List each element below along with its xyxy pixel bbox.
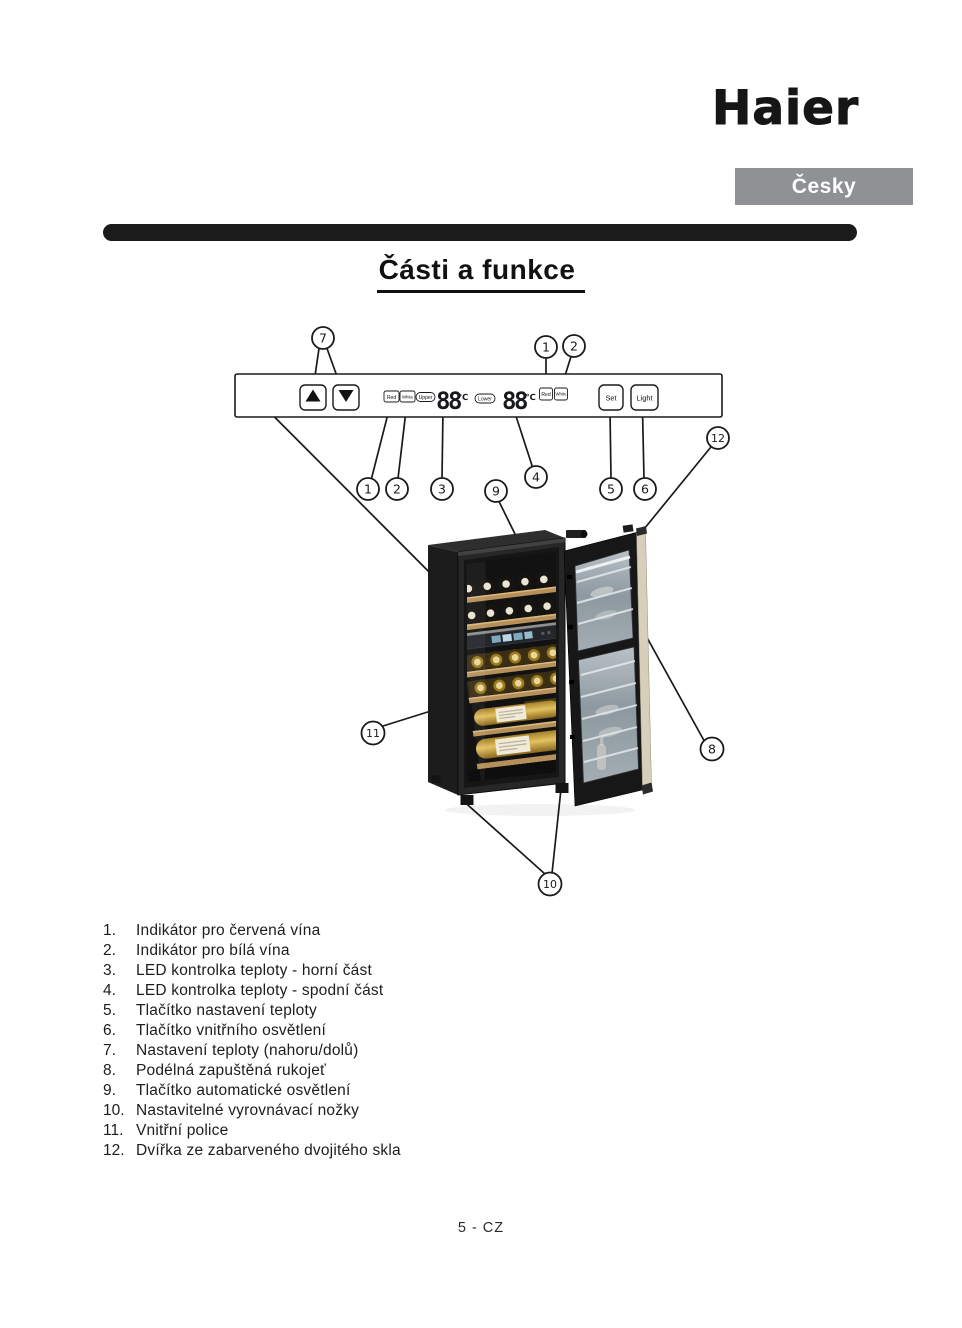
upper-white-indicator: White <box>400 391 415 402</box>
callout-4-number: 4 <box>532 469 540 484</box>
callout-7-number: 7 <box>319 330 327 345</box>
callout-3: 3 <box>431 478 453 500</box>
light-button: Light <box>631 385 658 410</box>
callout-11: 11 <box>362 722 385 745</box>
part-number: 11. <box>103 1121 136 1141</box>
temp-up-button <box>300 385 326 410</box>
leveling-foot-right <box>556 783 569 793</box>
part-label: Tlačítko vnitřního osvětlení <box>136 1021 583 1041</box>
page-footer: 5 - CZ <box>0 1220 962 1236</box>
glass-door <box>564 524 653 806</box>
part-label: Nastavitelné vyrovnávací nožky <box>136 1101 583 1121</box>
part-label: Dvířka ze zabarveného dvojitého skla <box>136 1141 583 1161</box>
callout-3-number: 3 <box>438 481 446 496</box>
svg-text:88: 88 <box>502 387 527 415</box>
callout-5: 5 <box>600 478 622 500</box>
callout-2-number: 2 <box>393 481 401 496</box>
callout-9-number: 9 <box>492 483 500 498</box>
part-number: 2. <box>103 941 136 961</box>
callout-1-number: 1 <box>364 481 372 496</box>
callout-10: 10 <box>539 873 562 896</box>
parts-list-item-11: 11.Vnitřní police <box>103 1121 583 1141</box>
brand-logo: Haier <box>712 84 862 134</box>
callout-12: 12 <box>707 427 729 449</box>
part-number: 12. <box>103 1141 136 1161</box>
header-divider-bar <box>103 224 857 241</box>
part-label: Nastavení teploty (nahoru/dolů) <box>136 1041 583 1061</box>
upper-red-indicator: Red <box>384 391 399 402</box>
temp-down-button <box>333 385 359 410</box>
part-number: 9. <box>103 1081 136 1101</box>
callout-1-top: 1 <box>535 336 557 358</box>
lower-white-indicator: White <box>555 388 568 400</box>
part-number: 1. <box>103 921 136 941</box>
part-number: 3. <box>103 961 136 981</box>
parts-list-item-5: 5.Tlačítko nastavení teploty <box>103 1001 583 1021</box>
callout-9: 9 <box>485 480 507 502</box>
lower-zone-label: Lower <box>475 394 495 403</box>
callout-2: 2 <box>386 478 408 500</box>
part-label: Tlačítko nastavení teploty <box>136 1001 583 1021</box>
leveling-foot-left <box>461 795 474 805</box>
callout-11-number: 11 <box>366 727 380 740</box>
part-label: LED kontrolka teploty - spodní část <box>136 981 583 1001</box>
callout-8: 8 <box>701 738 724 761</box>
part-number: 8. <box>103 1061 136 1081</box>
callout-1: 1 <box>357 478 379 500</box>
parts-list-item-12: 12.Dvířka ze zabarveného dvojitého skla <box>103 1141 583 1161</box>
part-label: Vnitřní police <box>136 1121 583 1141</box>
part-label: Indikátor pro červená vína <box>136 921 583 941</box>
svg-text:Red: Red <box>541 392 551 398</box>
upper-zone-label: Upper <box>416 393 435 402</box>
callout-2-number: 2 <box>570 338 578 353</box>
parts-list-item-3: 3.LED kontrolka teploty - horní část <box>103 961 583 981</box>
callout-5-number: 5 <box>607 481 615 496</box>
part-label: Tlačítko automatické osvětlení <box>136 1081 583 1101</box>
callout-7: 7 <box>312 327 334 349</box>
parts-list-item-4: 4.LED kontrolka teploty - spodní část <box>103 981 583 1001</box>
svg-text:Lower: Lower <box>478 397 492 403</box>
part-label: Indikátor pro bílá vína <box>136 941 583 961</box>
callout-2-top: 2 <box>563 335 585 357</box>
cabinet-left-side <box>428 545 458 795</box>
part-label: Podélná zapuštěná rukojeť <box>136 1061 583 1081</box>
page-title: Části a funkce <box>0 250 962 293</box>
set-button: Set <box>599 385 623 410</box>
part-number: 10. <box>103 1101 136 1121</box>
parts-list-item-1: 1.Indikátor pro červená vína <box>103 921 583 941</box>
part-number: 6. <box>103 1021 136 1041</box>
parts-list-item-10: 10.Nastavitelné vyrovnávací nožky <box>103 1101 583 1121</box>
svg-text:Light: Light <box>636 394 652 403</box>
svg-text:Set: Set <box>605 394 616 403</box>
callout-4: 4 <box>525 466 547 488</box>
part-number: 7. <box>103 1041 136 1061</box>
svg-text:℃: ℃ <box>526 393 536 403</box>
callout-12-number: 12 <box>711 432 725 445</box>
wine-cooler-illustration <box>428 524 653 816</box>
part-number: 4. <box>103 981 136 1001</box>
callout-10-number: 10 <box>543 878 557 891</box>
parts-list-item-2: 2.Indikátor pro bílá vína <box>103 941 583 961</box>
part-label: LED kontrolka teploty - horní část <box>136 961 583 981</box>
svg-text:Upper: Upper <box>419 395 433 401</box>
svg-text:White: White <box>402 395 414 400</box>
callout-1-number: 1 <box>542 339 550 354</box>
control-panel-diagram: Red White Upper 88 ℃ Lower 88 ℃ <box>235 374 722 417</box>
parts-list: 1.Indikátor pro červená vína 2.Indikátor… <box>103 921 583 1161</box>
svg-text:White: White <box>556 392 568 397</box>
part-number: 5. <box>103 1001 136 1021</box>
svg-text:Red: Red <box>387 395 397 401</box>
parts-list-item-9: 9.Tlačítko automatické osvětlení <box>103 1081 583 1101</box>
callout-6: 6 <box>634 478 656 500</box>
parts-diagram: Red White Upper 88 ℃ Lower 88 ℃ <box>0 320 962 920</box>
parts-list-item-8: 8.Podélná zapuštěná rukojeť <box>103 1061 583 1081</box>
svg-text:℃: ℃ <box>458 393 468 403</box>
language-tab: Česky <box>735 168 913 205</box>
manual-page: Haier Česky Části a funkce <box>0 0 962 1328</box>
parts-list-item-7: 7.Nastavení teploty (nahoru/dolů) <box>103 1041 583 1061</box>
parts-list-item-6: 6.Tlačítko vnitřního osvětlení <box>103 1021 583 1041</box>
lower-red-indicator: Red <box>540 388 553 400</box>
callout-8-number: 8 <box>708 741 716 756</box>
callout-6-number: 6 <box>641 481 649 496</box>
